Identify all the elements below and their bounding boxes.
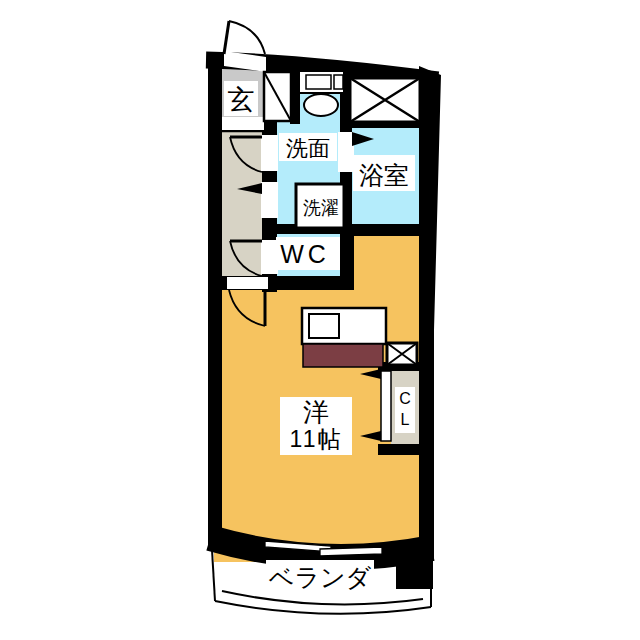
- label-washroom: 洗面: [286, 136, 330, 161]
- wall-bath-bottom: [346, 224, 436, 236]
- vanity-shelf-right: [334, 75, 343, 89]
- opening-wc-door: [261, 240, 278, 274]
- opening-laundry: [261, 182, 278, 218]
- label-genkan: 玄: [228, 85, 255, 115]
- entrance-door-leaf: [224, 21, 229, 54]
- label-bathroom: 浴室: [359, 161, 409, 189]
- label-living-type: 洋: [303, 397, 329, 427]
- wall-closet-bottom: [378, 444, 422, 455]
- opening-washroom-door: [261, 135, 278, 171]
- label-living-size: 11帖: [290, 426, 343, 452]
- wall-bottom-right-block: [396, 543, 433, 589]
- wash-basin-icon: [304, 94, 338, 116]
- label-closet-l: L: [401, 411, 410, 428]
- opening-bath-door: [338, 132, 354, 172]
- sliding-window-right: [320, 547, 382, 556]
- genkan-step: [222, 117, 264, 130]
- label-closet-c: C: [399, 390, 411, 407]
- label-veranda: ベランダ: [269, 563, 372, 591]
- entrance-door-arc-icon: [229, 21, 265, 54]
- floorplan-svg: 玄 洗面 浴室 洗濯 WC C L 洋 11帖 ベランダ: [0, 0, 640, 640]
- floorplan-page: 玄 洗面 浴室 洗濯 WC C L 洋 11帖 ベランダ: [0, 0, 640, 640]
- wall-right: [419, 66, 441, 561]
- closet-door: [381, 371, 391, 441]
- kitchen-counter-front: [303, 344, 383, 367]
- opening-living-door: [227, 277, 268, 289]
- vanity-shelf-left: [306, 75, 331, 89]
- label-laundry: 洗濯: [303, 198, 339, 218]
- kitchen-sink: [309, 314, 339, 338]
- label-toilet: WC: [280, 240, 330, 268]
